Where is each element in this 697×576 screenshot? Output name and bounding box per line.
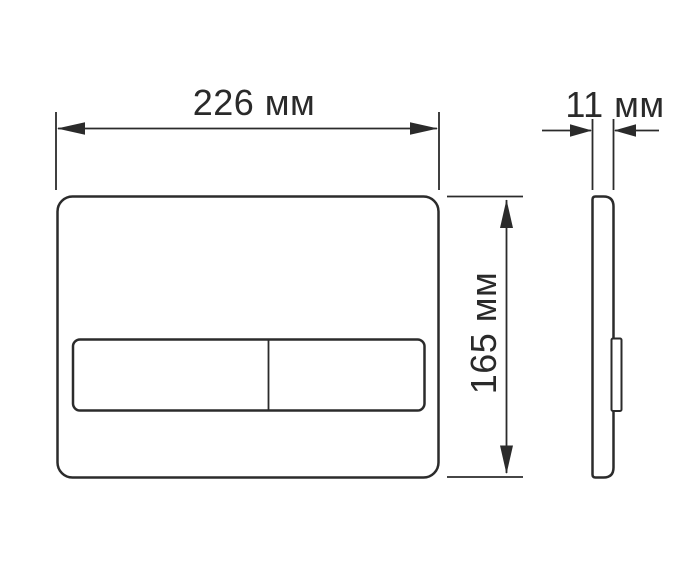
side-view-plate-outline [593,197,614,478]
height-arrow-down-icon [500,446,513,475]
flush-plate-dimension-drawing: 226 мм 165 мм 11 мм [0,0,697,576]
width-dimension: 226 мм [56,82,439,190]
height-dimension: 165 мм [447,197,523,478]
front-view-plate-outline [58,197,439,478]
height-dimension-label: 165 мм [463,272,504,395]
width-arrow-right-icon [410,122,438,135]
flush-buttons-outline [73,340,425,411]
front-view [58,197,439,478]
height-arrow-up-icon [500,200,513,229]
side-view-button-profile [612,339,622,412]
depth-dimension-label: 11 мм [565,84,664,125]
side-view [593,197,622,478]
depth-arrow-left-icon [614,124,636,136]
depth-arrow-right-icon [570,124,592,136]
width-arrow-left-icon [57,122,85,135]
width-dimension-label: 226 мм [193,82,316,123]
depth-dimension: 11 мм [542,84,665,190]
technical-drawing-canvas: 226 мм 165 мм 11 мм [0,0,697,576]
